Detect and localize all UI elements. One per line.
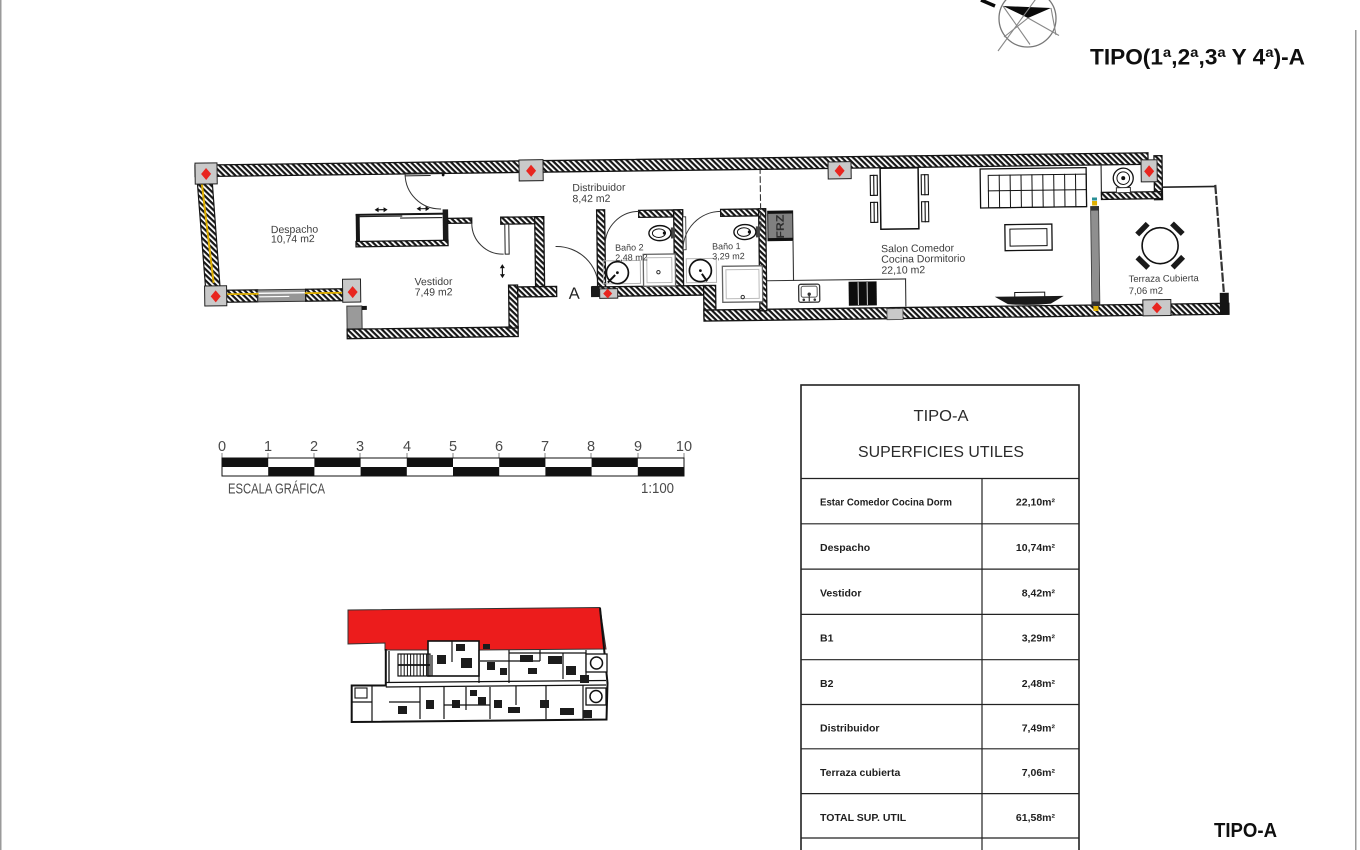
svg-text:A: A bbox=[569, 285, 580, 303]
svg-text:1: 1 bbox=[264, 439, 272, 455]
svg-text:7,06 m2: 7,06 m2 bbox=[1129, 286, 1163, 297]
svg-text:61,58m²: 61,58m² bbox=[1016, 812, 1056, 824]
svg-text:2,48m²: 2,48m² bbox=[1022, 678, 1056, 690]
svg-text:Baño 2: Baño 2 bbox=[615, 242, 644, 252]
svg-text:9: 9 bbox=[634, 439, 642, 455]
svg-text:0: 0 bbox=[218, 439, 226, 455]
svg-text:Distribuidor: Distribuidor bbox=[820, 723, 880, 735]
svg-text:1:100: 1:100 bbox=[641, 481, 674, 497]
svg-text:3,29 m2: 3,29 m2 bbox=[712, 251, 745, 261]
svg-text:2: 2 bbox=[310, 439, 318, 455]
svg-text:10,74 m2: 10,74 m2 bbox=[271, 233, 315, 246]
svg-text:8: 8 bbox=[587, 439, 595, 455]
svg-text:SUPERFICIES UTILES: SUPERFICIES UTILES bbox=[858, 444, 1024, 461]
svg-text:B2: B2 bbox=[820, 678, 834, 690]
svg-text:TIPO-A: TIPO-A bbox=[1214, 820, 1277, 842]
svg-text:3,29m²: 3,29m² bbox=[1022, 633, 1056, 645]
svg-text:7,49 m2: 7,49 m2 bbox=[415, 286, 453, 298]
svg-text:7,06m²: 7,06m² bbox=[1022, 767, 1056, 779]
svg-text:TIPO(1ª,2ª,3ª Y 4ª)-A: TIPO(1ª,2ª,3ª Y 4ª)-A bbox=[1090, 45, 1305, 70]
svg-text:Estar Comedor Cocina Dorm: Estar Comedor Cocina Dorm bbox=[820, 497, 952, 509]
svg-text:8,42 m2: 8,42 m2 bbox=[572, 193, 610, 205]
svg-text:22,10m²: 22,10m² bbox=[1016, 497, 1056, 509]
svg-text:Baño 1: Baño 1 bbox=[712, 241, 741, 251]
svg-text:Despacho: Despacho bbox=[820, 542, 870, 554]
svg-text:TOTAL SUP. UTIL: TOTAL SUP. UTIL bbox=[820, 812, 907, 824]
svg-text:B1: B1 bbox=[820, 633, 834, 645]
svg-text:22,10 m2: 22,10 m2 bbox=[881, 264, 925, 277]
svg-text:Terraza cubierta: Terraza cubierta bbox=[820, 767, 900, 779]
svg-text:Vestidor: Vestidor bbox=[820, 587, 861, 599]
svg-text:TIPO-A: TIPO-A bbox=[914, 408, 969, 425]
svg-text:3: 3 bbox=[356, 439, 364, 455]
svg-text:10,74m²: 10,74m² bbox=[1016, 542, 1056, 554]
svg-text:7: 7 bbox=[541, 439, 549, 455]
svg-text:ESCALA GRÁFICA: ESCALA GRÁFICA bbox=[228, 481, 325, 498]
svg-text:5: 5 bbox=[449, 439, 457, 455]
svg-text:10: 10 bbox=[676, 439, 692, 455]
svg-text:FRZ: FRZ bbox=[775, 214, 787, 238]
svg-text:4: 4 bbox=[403, 439, 411, 455]
svg-text:7,49m²: 7,49m² bbox=[1022, 723, 1056, 735]
svg-text:Terraza Cubierta: Terraza Cubierta bbox=[1128, 273, 1199, 285]
svg-text:6: 6 bbox=[495, 439, 503, 455]
svg-text:8,42m²: 8,42m² bbox=[1022, 587, 1056, 599]
svg-text:2,48 m2: 2,48 m2 bbox=[615, 252, 648, 262]
